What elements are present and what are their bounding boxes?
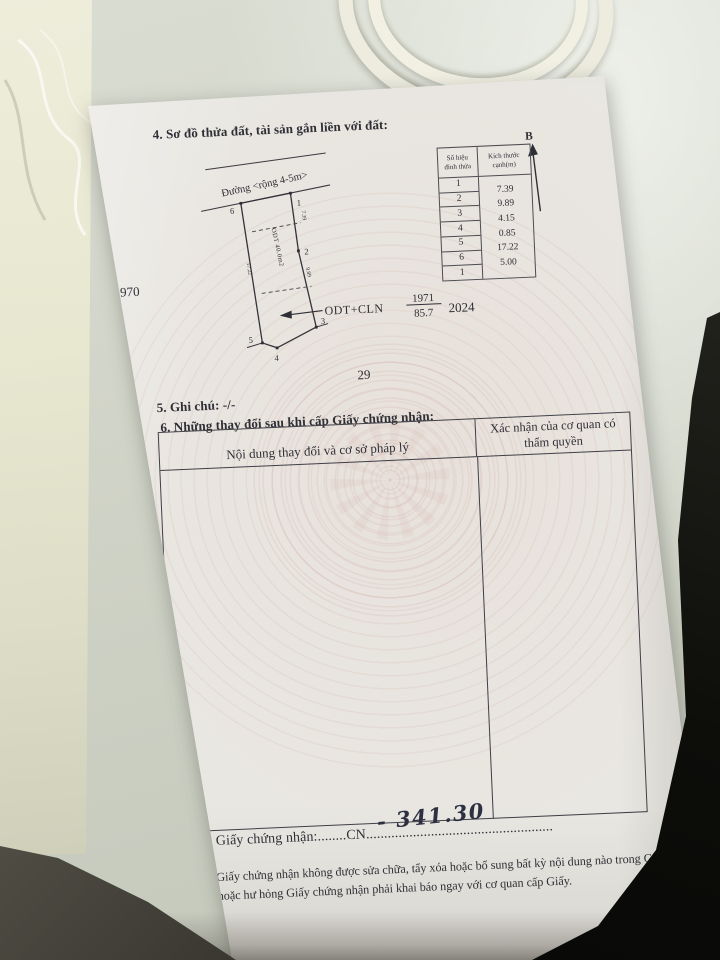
paper-sheet-wrap: 4. Sơ đồ thửa đất, tài sản gắn liền với … xyxy=(0,0,720,960)
edge-table-header-vertex-line2: đỉnh thửa xyxy=(438,161,477,171)
vertex1-label: 1 xyxy=(296,198,301,208)
vertex6-label: 6 xyxy=(230,206,235,216)
vertex-cell: 1 xyxy=(439,177,478,193)
edge-table-header-vertex: Số hiệu đỉnh thửa xyxy=(438,147,479,178)
vertex5-marker xyxy=(261,341,264,344)
parcel-area: 85.7 xyxy=(414,307,434,320)
changes-table: Nội dung thay đổi và cơ sở pháp lý Xác n… xyxy=(158,411,648,832)
edge-table-header-length: Kích thước cạnh(m) xyxy=(477,145,531,176)
vertex3-marker xyxy=(315,326,318,329)
length-cell: 5.00 xyxy=(482,254,535,271)
document-content: 4. Sơ đồ thửa đất, tài sản gắn liền với … xyxy=(0,0,720,960)
registry-code: CN xyxy=(346,827,366,843)
vertex-cell: 1 xyxy=(443,265,482,280)
vertex4-label: 4 xyxy=(274,353,279,363)
neighbor-parcel-right: 2024 xyxy=(448,299,475,315)
section4-title: 4. Sơ đồ thửa đất, tài sản gắn liền với … xyxy=(152,117,388,143)
street-label: Đường <rộng 4-5m> xyxy=(220,170,308,200)
neighbor-parcel-bottom: 29 xyxy=(357,367,371,383)
section5-title: 5. Ghi chú: -/- xyxy=(156,397,235,416)
edge-mark-left: 17.22 xyxy=(245,262,253,275)
land-use-label: ODT+CLN xyxy=(324,301,383,318)
edge-table-body: 1 2 3 4 5 6 1 7.39 9.89 4.15 0.85 xyxy=(439,175,535,281)
vertex2-marker xyxy=(297,249,300,252)
parcel-inner-label: ODT 40.0m2 xyxy=(270,227,285,267)
edge-table-vertex-column: 1 2 3 4 5 6 1 xyxy=(439,177,483,281)
changes-table-col2-header: Xác nhận của cơ quan có thẩm quyền xyxy=(475,412,630,456)
changes-table-col1-body xyxy=(160,457,493,833)
north-label: B xyxy=(525,130,534,142)
vertex2-label: 2 xyxy=(304,246,309,256)
north-arrow-line xyxy=(533,151,541,211)
edge-table-header: Số hiệu đỉnh thửa Kích thước cạnh(m) xyxy=(438,145,531,179)
edge-mark-right-lower: 9.89 xyxy=(304,267,312,278)
vertex-cell: 2 xyxy=(440,192,479,208)
street-far-edge-line xyxy=(205,153,326,170)
registry-label: Số vào sổ cấp Giấy chứng nhận: xyxy=(133,830,317,853)
edge-length-table: Số hiệu đỉnh thửa Kích thước cạnh(m) 1 2… xyxy=(437,144,537,282)
edge-table-header-length-line2: cạnh(m) xyxy=(478,159,531,169)
vertex5-label: 5 xyxy=(248,335,253,345)
neighbor-parcel-left: 1970 xyxy=(113,284,140,300)
parcel-number: 1971 xyxy=(412,292,435,305)
edge-table-length-column: 7.39 9.89 4.15 0.85 17.22 5.00 xyxy=(478,175,535,279)
photo-of-land-certificate: 4. Sơ đồ thửa đất, tài sản gắn liền với … xyxy=(0,0,720,960)
dashed-divider-lower xyxy=(262,286,312,293)
registry-dots-before: ........ xyxy=(317,828,346,844)
changes-table-body xyxy=(160,450,646,832)
edge-mark-right-upper: 7.39 xyxy=(300,210,307,221)
vertex6-marker xyxy=(239,202,242,205)
certificate-page: 4. Sơ đồ thửa đất, tài sản gắn liền với … xyxy=(0,0,720,960)
vertex1-marker xyxy=(289,192,292,195)
land-use-arrow-line xyxy=(290,311,323,315)
vertex4-marker xyxy=(276,346,279,349)
land-use-arrowhead xyxy=(280,311,292,320)
